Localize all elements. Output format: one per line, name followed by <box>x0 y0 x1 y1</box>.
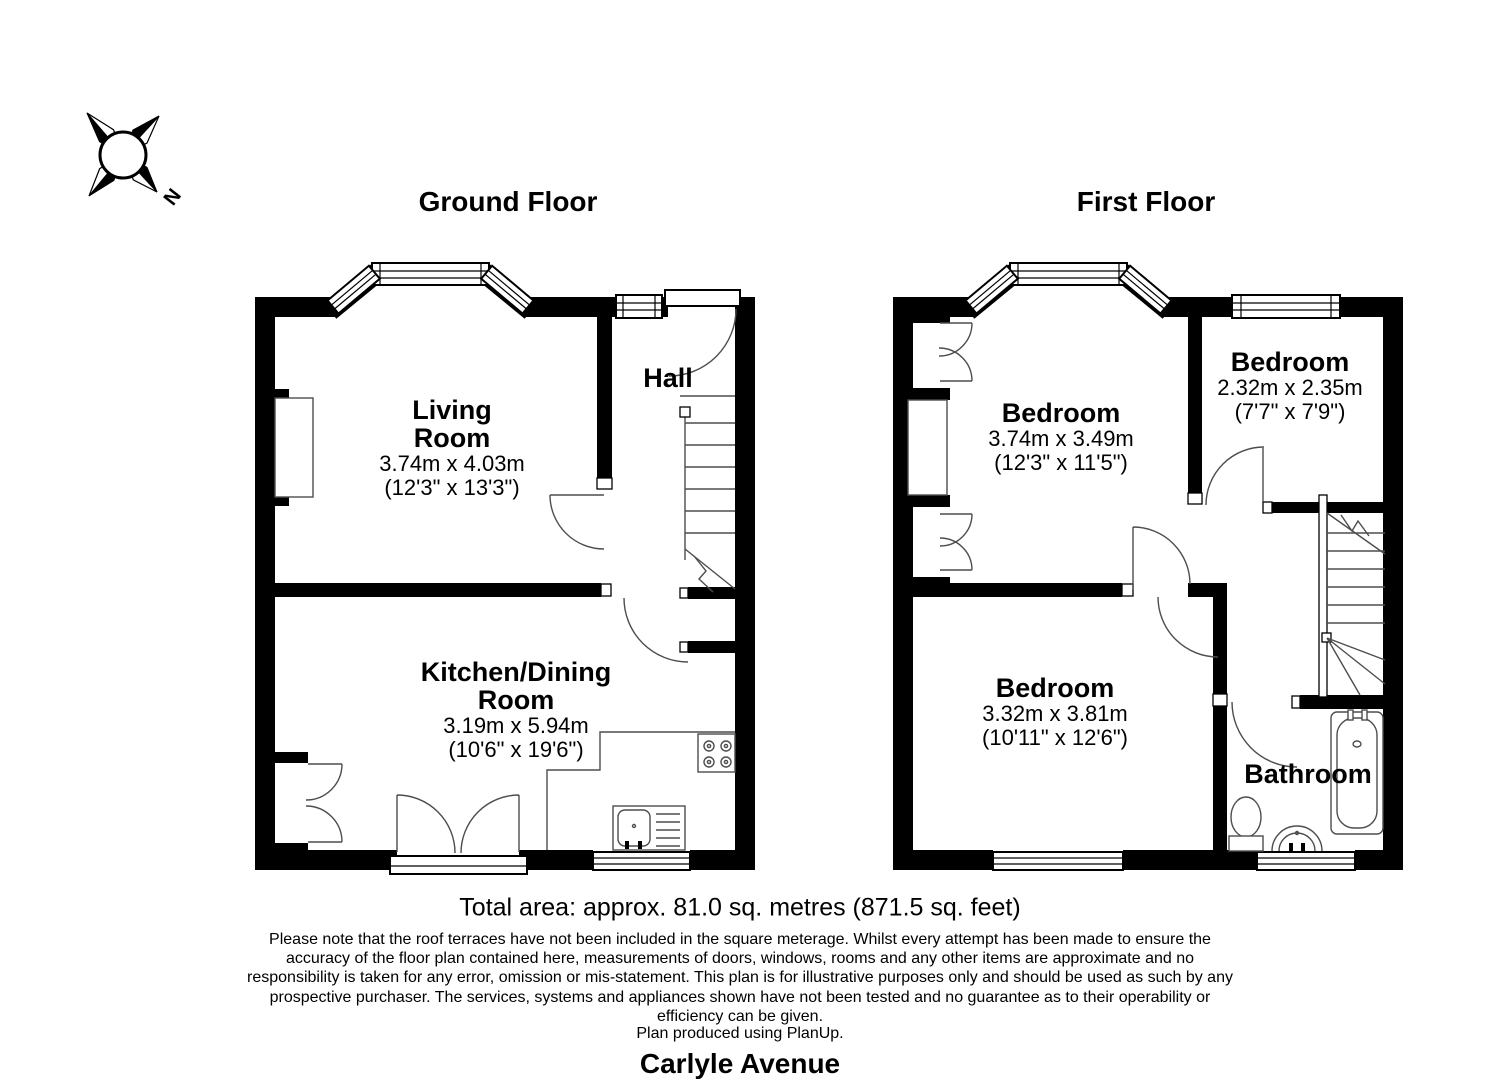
hall-label: Hall <box>643 364 693 392</box>
small-bedroom-metric: 2.32m x 2.35m <box>1217 376 1363 400</box>
living-room-label: Living Room 3.74m x 4.03m (12'3" x 13'3"… <box>379 396 525 500</box>
hob-icon <box>698 734 735 772</box>
back-bedroom-label: Bedroom 3.32m x 3.81m (10'11" x 12'6") <box>982 674 1128 750</box>
front-bedroom-name: Bedroom <box>988 399 1134 427</box>
ground-floor-plan <box>255 263 755 874</box>
back-bedroom-name: Bedroom <box>982 674 1128 702</box>
basin-icon <box>1272 826 1322 851</box>
stairs-first <box>1319 495 1385 697</box>
compass-rose-icon <box>87 113 159 196</box>
bathroom-window <box>1257 852 1355 870</box>
plan-produced-text: Plan produced using PlanUp. <box>636 1025 843 1043</box>
front-bedroom-metric: 3.74m x 3.49m <box>988 427 1134 451</box>
back-bedroom-window <box>993 852 1123 870</box>
ground-floor-title: Ground Floor <box>419 186 598 218</box>
living-room-door <box>550 478 612 549</box>
small-bedroom-window <box>1232 295 1340 318</box>
kitchen-name-line1: Kitchen/Dining <box>421 658 612 686</box>
kitchen-sink-icon <box>613 806 685 850</box>
front-bedroom-imperial: (12'3" x 11'5") <box>988 451 1134 475</box>
disclaimer-line: responsibility is taken for any error, o… <box>247 968 1233 987</box>
disclaimer-line: prospective purchaser. The services, sys… <box>247 988 1233 1007</box>
chimney-breast-living <box>275 398 313 497</box>
ground-floor-walls <box>255 270 755 870</box>
kitchen-imperial: (10'6" x 19'6") <box>421 738 612 762</box>
total-area-text: Total area: approx. 81.0 sq. metres (871… <box>459 894 1020 923</box>
floorplan-page: N Ground Floor First Floor Living Room 3… <box>0 0 1485 1080</box>
kitchen-dining-label: Kitchen/Dining Room 3.19m x 5.94m (10'6"… <box>421 658 612 762</box>
bathroom-label: Bathroom <box>1244 760 1372 788</box>
small-bedroom-label: Bedroom 2.32m x 2.35m (7'7" x 7'9") <box>1217 348 1363 424</box>
front-bedroom-door <box>1122 527 1190 596</box>
wardrobe-doors-front-bedroom <box>908 323 972 570</box>
kitchen-window <box>593 852 690 870</box>
toilet-icon <box>1229 797 1263 851</box>
front-bedroom-label: Bedroom 3.74m x 3.49m (12'3" x 11'5") <box>988 399 1134 475</box>
small-bedroom-name: Bedroom <box>1217 348 1363 376</box>
property-address: Carlyle Avenue <box>640 1048 840 1080</box>
back-bedroom-door <box>1158 597 1218 657</box>
living-room-name-line1: Living <box>379 396 525 424</box>
bay-window-first <box>966 263 1172 313</box>
disclaimer-line: accuracy of the floor plan contained her… <box>247 949 1233 968</box>
back-bedroom-imperial: (10'11" x 12'6") <box>982 726 1128 750</box>
small-bedroom-imperial: (7'7" x 7'9") <box>1217 400 1363 424</box>
storage-cupboard-doors <box>306 764 342 842</box>
french-doors <box>390 795 527 874</box>
kitchen-doorway <box>601 584 688 662</box>
back-bedroom-metric: 3.32m x 3.81m <box>982 702 1128 726</box>
first-floor-title: First Floor <box>1077 186 1215 218</box>
living-room-name-line2: Room <box>379 424 525 452</box>
disclaimer-line: Please note that the roof terraces have … <box>247 930 1233 949</box>
disclaimer-line: efficiency can be given. <box>247 1007 1233 1026</box>
living-room-metric: 3.74m x 4.03m <box>379 452 525 476</box>
stairs-ground <box>680 396 735 592</box>
bay-window-ground <box>328 263 534 313</box>
kitchen-name-line2: Room <box>421 686 612 714</box>
disclaimer-text: Please note that the roof terraces have … <box>247 930 1233 1026</box>
living-room-imperial: (12'3" x 13'3") <box>379 476 525 500</box>
understairs-cupboard <box>680 588 688 652</box>
kitchen-metric: 3.19m x 5.94m <box>421 714 612 738</box>
hall-window <box>616 295 662 318</box>
